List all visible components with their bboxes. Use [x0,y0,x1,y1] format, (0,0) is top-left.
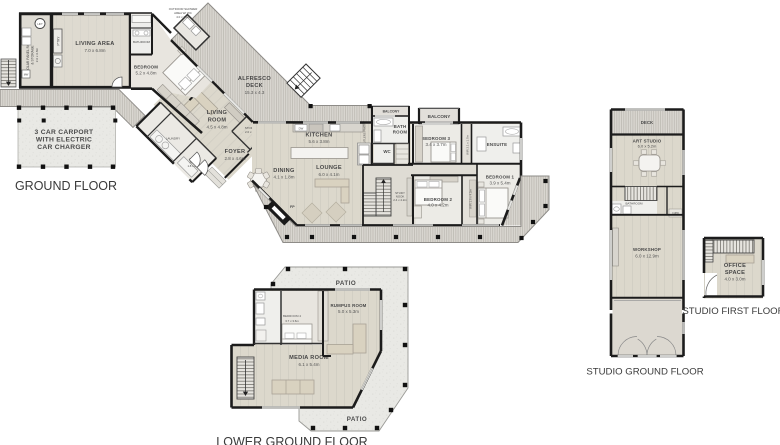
svg-text:LAUNDRY: LAUNDRY [166,137,180,141]
svg-text:STUDIO FIRST FLOOR: STUDIO FIRST FLOOR [682,306,780,317]
svg-text:P'TRY: P'TRY [57,36,61,46]
svg-text:CAR CHARGER: CAR CHARGER [37,144,90,151]
svg-text:6.0 x 4.1m: 6.0 x 4.1m [318,172,339,177]
svg-text:MW: MW [24,72,29,76]
svg-text:BALCONY: BALCONY [428,114,451,119]
svg-text:DECK: DECK [641,120,654,125]
svg-text:FP: FP [290,205,295,209]
svg-text:LOUNGE: LOUNGE [316,165,342,171]
svg-text:PATIO: PATIO [347,416,368,423]
svg-text:4.5 x 4.8m: 4.5 x 4.8m [206,125,227,130]
svg-text:BEDROOM: BEDROOM [134,65,158,70]
svg-text:6.0 x 5.2m: 6.0 x 5.2m [638,144,657,149]
svg-text:5.0 x 5.3m: 5.0 x 5.3m [338,309,359,314]
svg-text:LIVING: LIVING [207,110,227,116]
svg-text:6.1 x 5.4m: 6.1 x 5.4m [298,362,319,367]
svg-text:4.1 x 1.8m: 4.1 x 1.8m [273,175,294,180]
svg-text:WITH ELECTRIC: WITH ELECTRIC [36,137,92,144]
svg-text:BEDROOM 2: BEDROOM 2 [424,197,453,202]
svg-text:RUMPUS ROOM: RUMPUS ROOM [330,303,366,308]
svg-text:& STORAGE: & STORAGE [31,45,35,65]
svg-text:6.0 x 12.9m: 6.0 x 12.9m [635,254,659,259]
svg-text:15.3 x 4.3: 15.3 x 4.3 [245,90,265,95]
svg-text:OFFICE: OFFICE [724,263,746,269]
svg-text:3.7 x 3.6m: 3.7 x 3.6m [285,319,299,323]
svg-text:WORKSHOP: WORKSHOP [633,247,661,252]
svg-text:WC: WC [383,149,391,154]
svg-text:3 CAR CARPORT: 3 CAR CARPORT [35,129,95,136]
svg-text:ALFRESCO: ALFRESCO [238,76,272,82]
svg-text:PATIO: PATIO [336,280,357,287]
svg-text:LIVING AREA: LIVING AREA [75,41,114,47]
svg-text:ROOM: ROOM [208,118,227,124]
svg-text:GROUND FLOOR: GROUND FLOOR [15,179,117,193]
svg-text:5.2 x 4.8m: 5.2 x 4.8m [135,71,156,76]
svg-text:BATHROOM: BATHROOM [133,40,151,44]
svg-text:4.0 x 4.2m: 4.0 x 4.2m [427,203,448,208]
svg-text:DINING: DINING [273,168,294,174]
svg-text:2.4 x 4.2m: 2.4 x 4.2m [393,198,407,202]
svg-text:BEDROOM 3: BEDROOM 3 [422,136,451,141]
svg-text:7.0 x 6.8m: 7.0 x 6.8m [84,48,105,53]
svg-text:BUTLERS PANTRY: BUTLERS PANTRY [363,121,367,145]
svg-text:DECK: DECK [246,83,263,89]
svg-text:LIFT: LIFT [37,22,43,26]
svg-text:BATHROOM: BATHROOM [625,202,643,206]
svg-text:4.0 x 2.0m: 4.0 x 2.0m [176,15,190,19]
svg-text:BATH: BATH [394,124,407,129]
svg-text:KITCHEN: KITCHEN [306,133,333,139]
svg-text:5.6 x 3.8m: 5.6 x 3.8m [308,139,329,144]
svg-text:3.9 x 5.4m: 3.9 x 5.4m [489,181,510,186]
svg-text:3.4 x 3.7m: 3.4 x 3.7m [425,142,446,147]
svg-text:ROOM: ROOM [393,130,408,135]
svg-text:ENSUITE: ENSUITE [487,142,507,147]
svg-text:BEDROOM 1: BEDROOM 1 [486,175,515,180]
svg-text:DW: DW [299,127,304,131]
svg-text:WIR 1.6 x 4.2m: WIR 1.6 x 4.2m [469,188,473,209]
svg-text:STUDIO GROUND FLOOR: STUDIO GROUND FLOOR [586,367,703,378]
svg-text:4.0 x 3.0m: 4.0 x 3.0m [724,277,745,282]
svg-text:LOWER GROUND FLOOR: LOWER GROUND FLOOR [216,435,367,445]
svg-text:FOYER: FOYER [225,149,246,155]
svg-text:BALCONY: BALCONY [383,110,401,114]
svg-text:WIR 2.1 x 1.7m: WIR 2.1 x 1.7m [466,134,470,155]
svg-text:2.8 x 4.6m: 2.8 x 4.6m [224,156,245,161]
svg-text:2.6 x 6.8m: 2.6 x 6.8m [35,47,39,62]
svg-text:BEDROOM 4: BEDROOM 4 [283,314,301,318]
svg-text:SPACE: SPACE [725,270,745,276]
